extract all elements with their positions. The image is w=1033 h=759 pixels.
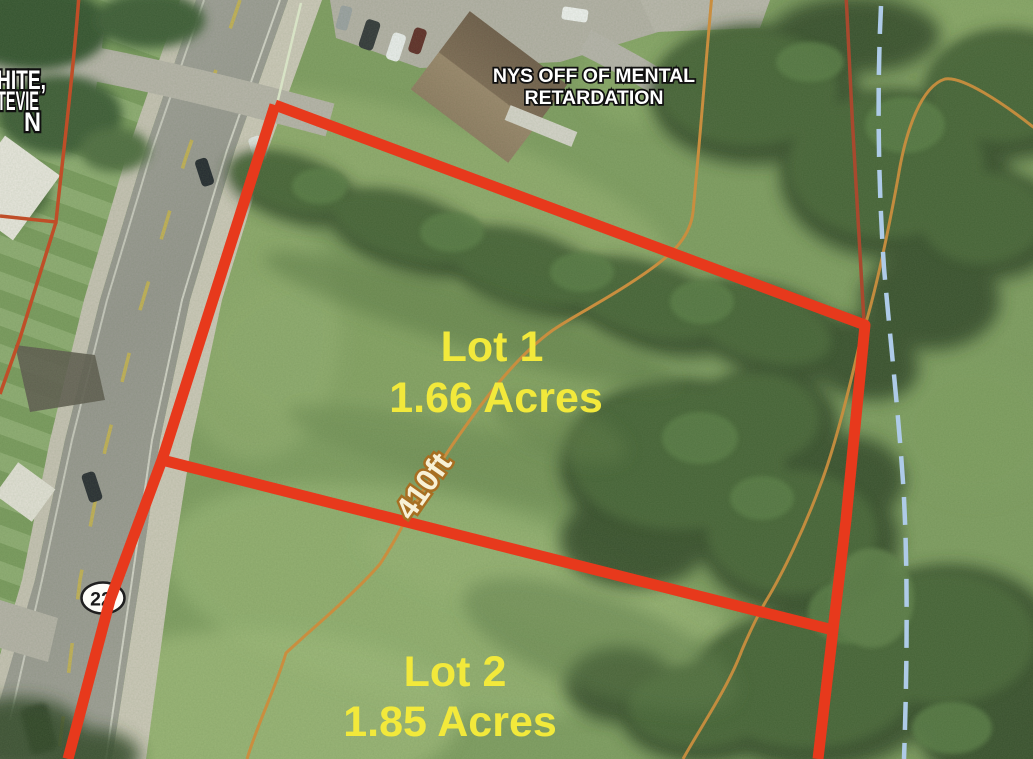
lot1-area-label: 1.66 Acres	[389, 374, 603, 422]
map-canvas: 22 HITE, TEVIE N NYS OFF OF MENTAL RETAR…	[0, 0, 1033, 759]
facility-label-line1: NYS OFF OF MENTAL	[493, 65, 695, 87]
owner-label-line3: N	[24, 107, 41, 137]
lot2-area-label: 1.85 Acres	[343, 698, 557, 746]
facility-label-line2: RETARDATION	[524, 87, 663, 109]
lot1-name-label: Lot 1	[441, 323, 544, 371]
lot2-name-label: Lot 2	[404, 648, 507, 696]
aerial-lot-map: 22 HITE, TEVIE N NYS OFF OF MENTAL RETAR…	[0, 0, 1033, 759]
